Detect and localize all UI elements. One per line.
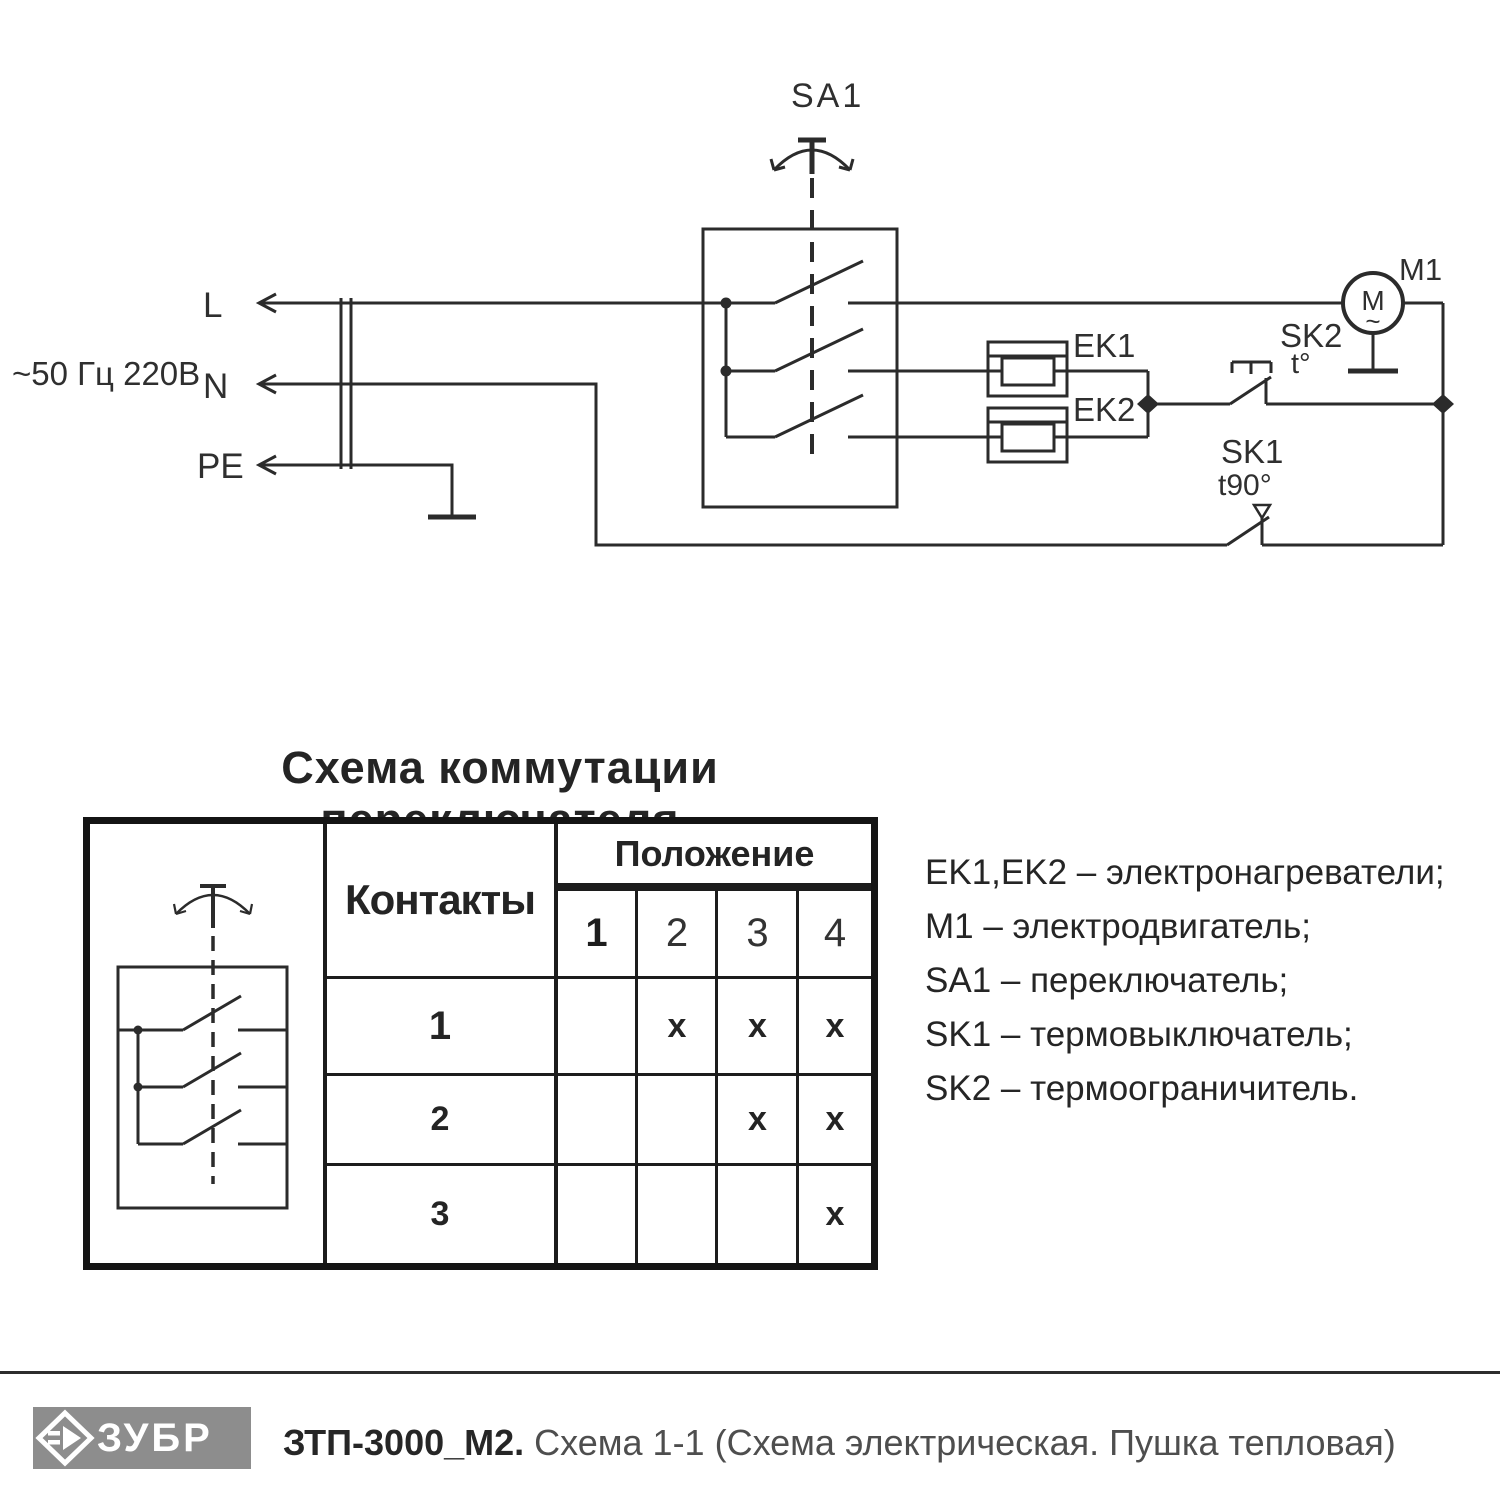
legend-item-sk2: SK2 – термоограничитель.	[925, 1062, 1445, 1116]
sa1-switch-symbol	[703, 140, 897, 507]
contact-3-label: 3	[326, 1166, 554, 1263]
branch-wires	[848, 303, 1443, 545]
sk1-label: SK1	[1221, 433, 1283, 470]
position-header: Положение	[558, 824, 871, 883]
motor-tilde: ~	[1365, 306, 1380, 336]
table-col-line-2	[715, 891, 718, 1263]
footer-separator	[0, 1371, 1500, 1374]
ek1-label: EK1	[1073, 327, 1135, 364]
table-col-line-1	[635, 891, 638, 1263]
zubr-logo: ЗУБР	[33, 1407, 251, 1469]
zubr-logo-text: ЗУБР	[97, 1407, 213, 1469]
sk1-switch-symbol	[1227, 505, 1270, 545]
contact-1-label: 1	[326, 979, 554, 1073]
mark-1-2: x	[639, 979, 715, 1073]
contact-2-label: 2	[326, 1076, 554, 1163]
sa1-label: SA1	[791, 77, 864, 115]
ek2-label: EK2	[1073, 391, 1135, 428]
scheme-subtitle: Схема 1-1 (Схема электрическая. Пушка те…	[534, 1422, 1396, 1463]
mark-2-3: x	[719, 1076, 796, 1163]
mark-3-1	[558, 1166, 635, 1263]
sk2-switch-symbol	[1230, 362, 1271, 404]
component-legend: EK1,EK2 – электронагреватели; M1 – элект…	[925, 846, 1445, 1116]
supply-label: ~50 Гц 220В	[12, 355, 200, 392]
commutation-table: Контакты Положение 1 2 3 4 1 x x x 2 x x…	[83, 817, 878, 1270]
mark-3-3	[719, 1166, 796, 1263]
zubr-logo-icon	[33, 1407, 97, 1469]
m1-label: M1	[1399, 252, 1442, 287]
mark-2-4: x	[799, 1076, 871, 1163]
schematic-page: M ~ ~50 Гц 220В L N PE SA1 EK1 EK2 M1 SK…	[0, 0, 1500, 1500]
position-2: 2	[639, 891, 715, 976]
contacts-header: Контакты	[326, 824, 554, 976]
mark-1-4: x	[799, 979, 871, 1073]
terminal-pe-label: PE	[197, 447, 244, 486]
legend-item-sa1: SA1 – переключатель;	[925, 954, 1445, 1008]
footer-title: ЗТП-3000_М2.Схема 1-1 (Схема электрическ…	[283, 1421, 1396, 1465]
mark-3-2	[639, 1166, 715, 1263]
legend-item-sk1: SK1 – термовыключатель;	[925, 1008, 1445, 1062]
sk2-label: SK2	[1280, 317, 1342, 354]
mark-3-4: x	[799, 1166, 871, 1263]
mark-1-1	[558, 979, 635, 1073]
terminal-l-label: L	[203, 286, 222, 325]
circuit-diagram: M ~ ~50 Гц 220В L N PE SA1 EK1 EK2 M1 SK…	[0, 0, 1500, 690]
terminal-n-label: N	[203, 367, 228, 406]
ek1-heater-symbol	[988, 342, 1067, 396]
mini-switch-symbol	[90, 824, 322, 1263]
mark-2-1	[558, 1076, 635, 1163]
position-3: 3	[719, 891, 796, 976]
junction-node-right	[1432, 394, 1454, 414]
mark-1-3: x	[719, 979, 796, 1073]
position-1: 1	[558, 891, 635, 976]
mark-2-2	[639, 1076, 715, 1163]
legend-item-ek: EK1,EK2 – электронагреватели;	[925, 846, 1445, 900]
junction-node-left	[1137, 394, 1159, 414]
m1-motor-symbol: M ~	[1343, 273, 1403, 371]
ek2-heater-symbol	[988, 408, 1067, 462]
table-thick-line-positions	[554, 883, 871, 891]
sk1-temp-label: t90°	[1218, 469, 1272, 502]
position-4: 4	[799, 891, 871, 976]
legend-item-m1: M1 – электродвигатель;	[925, 900, 1445, 954]
sk2-temp-label: t°	[1291, 348, 1311, 380]
model-number: ЗТП-3000_М2.	[283, 1422, 524, 1463]
